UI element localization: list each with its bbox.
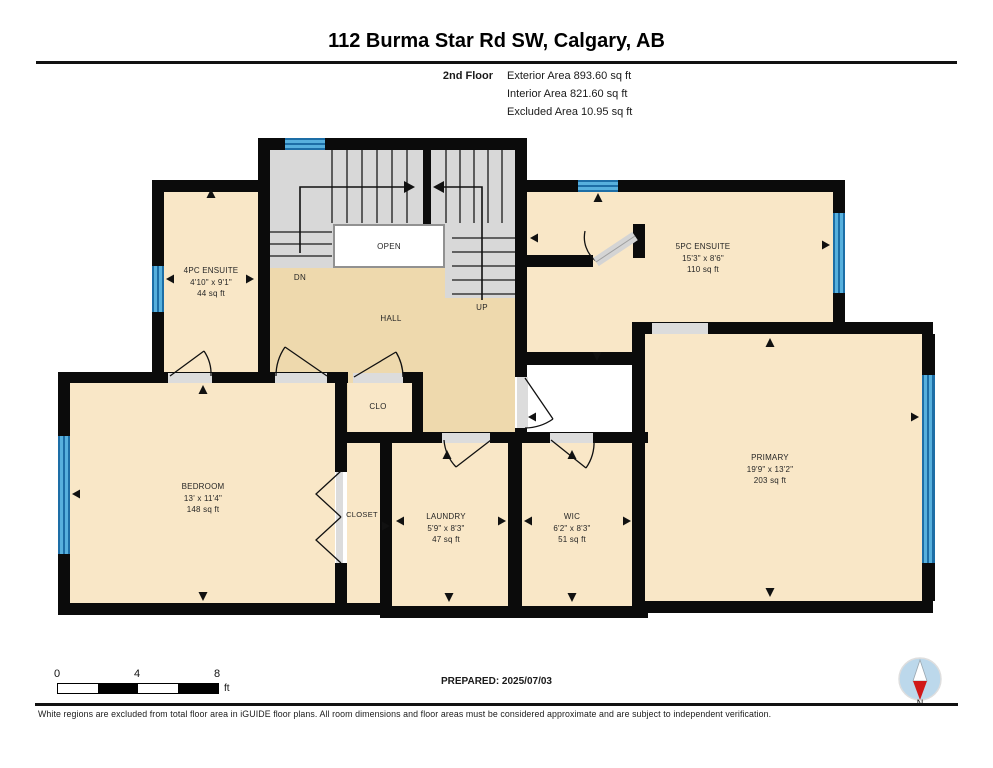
prepared-date: PREPARED: 2025/07/03 (0, 676, 993, 687)
room-name: BEDROOM (182, 481, 225, 493)
room-area: 203 sq ft (747, 475, 793, 487)
room-dims: 5'9" x 8'3" (426, 523, 466, 535)
room-label-hall: HALL (380, 314, 401, 323)
room-label-4pc-ensuite: 4PC ENSUITE 4'10" x 9'1" 44 sq ft (184, 265, 239, 300)
room-dims: 4'10" x 9'1" (184, 277, 239, 289)
room-label-laundry: LAUNDRY 5'9" x 8'3" 47 sq ft (426, 511, 466, 546)
room-label-bedroom: BEDROOM 13' x 11'4" 148 sq ft (182, 481, 225, 516)
room-dims: 19'9" x 13'2" (747, 464, 793, 476)
room-dims: 13' x 11'4" (182, 493, 225, 505)
room-area: 51 sq ft (553, 534, 590, 546)
stair-treads (270, 150, 515, 294)
footer-disclaimer: White regions are excluded from total fl… (38, 709, 771, 719)
room-area: 44 sq ft (184, 288, 239, 300)
room-label-5pc-ensuite: 5PC ENSUITE 15'3" x 8'6" 110 sq ft (676, 241, 731, 276)
dimension-arrows (72, 189, 919, 602)
plan-annotations (0, 0, 993, 768)
room-label-wic: WIC 6'2" x 8'3" 51 sq ft (553, 511, 590, 546)
room-dims: 15'3" x 8'6" (676, 253, 731, 265)
room-name: WIC (553, 511, 590, 523)
room-area: 47 sq ft (426, 534, 466, 546)
bifold-closet-doors (316, 471, 341, 563)
room-name: PRIMARY (747, 452, 793, 464)
stairs-down-label: DN (294, 273, 306, 282)
floorplan-page: 112 Burma Star Rd SW, Calgary, AB 2nd Fl… (0, 0, 993, 768)
room-area: 110 sq ft (676, 264, 731, 276)
room-name: 5PC ENSUITE (676, 241, 731, 253)
stairs-up-label: UP (476, 303, 488, 312)
door-leaf-5pc (596, 236, 635, 262)
room-area: 148 sq ft (182, 504, 225, 516)
room-label-clo: CLO (369, 402, 386, 411)
stair-direction-arrows (300, 181, 482, 300)
room-label-primary: PRIMARY 19'9" x 13'2" 203 sq ft (747, 452, 793, 487)
footer-divider (35, 703, 958, 706)
room-dims: 6'2" x 8'3" (553, 523, 590, 535)
room-name: 4PC ENSUITE (184, 265, 239, 277)
room-name: LAUNDRY (426, 511, 466, 523)
room-label-closet: CLOSET (346, 510, 378, 519)
